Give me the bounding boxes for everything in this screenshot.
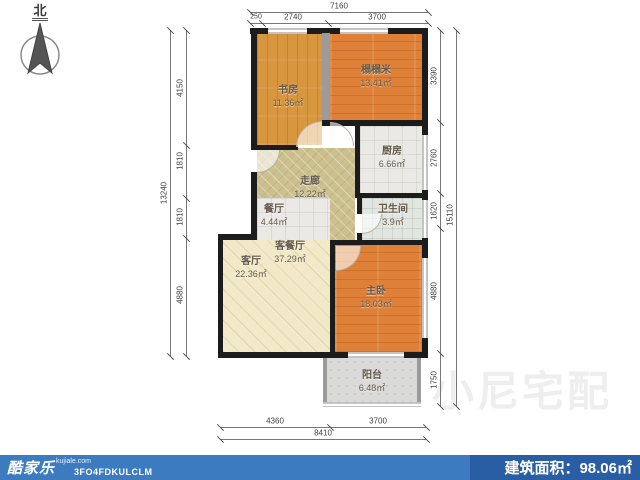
window-bathroom-right <box>422 200 428 238</box>
window-balcony-door <box>348 352 404 358</box>
window-study-top <box>268 28 307 34</box>
dim-right-overall: 15110 <box>446 204 455 226</box>
dim-top-seg-2740: 2740 <box>284 13 302 22</box>
wall-bathroom-left-upper <box>357 198 362 214</box>
compass-north-label: 北 <box>32 4 47 21</box>
dimline-left-segments <box>186 30 187 356</box>
dimline-right-overall <box>456 30 457 406</box>
kujiale-logo: 酷家乐 <box>7 457 55 478</box>
dim-bottom-overall: 8410 <box>314 429 332 438</box>
building-area-value: 98.06㎡ <box>579 457 632 478</box>
dim-right-seg-3390: 3390 <box>430 67 439 85</box>
wall-bathroom-top <box>355 193 422 198</box>
dimline-bottom-overall <box>220 439 426 440</box>
wall-left-lower <box>218 234 223 358</box>
dimline-left-overall <box>170 30 171 356</box>
dim-left-seg-1810b: 1810 <box>176 208 185 226</box>
room-label-tatami: 榻榻米 13.41㎡ <box>360 65 392 89</box>
plan-code: 3FO4FDKULCLM <box>74 467 153 477</box>
wall-bottom-bedroom-left <box>330 352 348 358</box>
dim-bottom-seg-3700: 3700 <box>369 417 387 426</box>
dimline-top-segments <box>250 23 428 24</box>
wall-bedroom-top <box>330 240 422 245</box>
room-label-living-dining: 客餐厅 37.29㎡ <box>274 241 306 265</box>
wall-step <box>218 234 257 240</box>
wall-bedroom-left <box>330 240 335 352</box>
window-tatami-top <box>340 28 388 34</box>
dim-right-seg-4880: 4880 <box>430 282 439 300</box>
room-label-kitchen: 厨房 6.66㎡ <box>379 146 406 170</box>
building-area-label: 建筑面积： <box>504 457 579 478</box>
room-label-master-bedroom: 主卧 18.03㎡ <box>360 286 392 310</box>
wall-kitchen-left <box>355 126 360 193</box>
dim-left-seg-4150: 4150 <box>176 79 185 97</box>
dim-top-overall: 7160 <box>330 2 348 11</box>
dim-right-seg-2760: 2760 <box>430 149 439 167</box>
floorplan-canvas: 北 书房 11.36㎡ <box>0 0 640 480</box>
dim-top-seg-3700: 3700 <box>368 13 386 22</box>
building-area-badge: 建筑面积： 98.06㎡ <box>470 455 640 480</box>
dim-bottom-seg-4360: 4360 <box>266 417 284 426</box>
room-label-bathroom: 卫生间 3.9㎡ <box>378 204 408 228</box>
watermark-text: 小尼宅配 <box>432 358 612 419</box>
room-label-study: 书房 11.36㎡ <box>273 85 304 109</box>
dim-right-seg-1620: 1620 <box>430 202 439 220</box>
dim-left-overall: 13240 <box>160 182 169 204</box>
wall-balcony-right <box>417 358 421 406</box>
window-balcony-bottom <box>323 402 421 407</box>
room-label-balcony: 阳台 6.48㎡ <box>359 370 386 394</box>
room-label-corridor: 走廊 12.22㎡ <box>294 176 326 200</box>
wall-left-upper <box>251 28 257 240</box>
window-kitchen-right <box>422 135 428 190</box>
dim-top-seg-250: 250 <box>250 14 262 21</box>
compass-icon <box>12 21 68 83</box>
wall-bottom-bedroom-right <box>404 352 428 358</box>
kujiale-domain: kujiale.com <box>56 458 91 465</box>
dim-left-seg-4880: 4880 <box>176 286 185 304</box>
compass: 北 <box>8 2 72 88</box>
wall-balcony-left <box>323 358 327 406</box>
room-label-living: 客厅 22.36㎡ <box>235 256 267 280</box>
wall-bottom-living <box>218 352 335 358</box>
wall-study-tatami-divider <box>322 33 330 123</box>
dimline-right-segments <box>440 30 441 406</box>
dim-left-seg-1810a: 1810 <box>176 152 185 170</box>
window-bedroom-right <box>422 258 428 338</box>
room-label-dining: 餐厅 4.44㎡ <box>261 204 288 228</box>
dimline-top-overall <box>250 12 428 13</box>
